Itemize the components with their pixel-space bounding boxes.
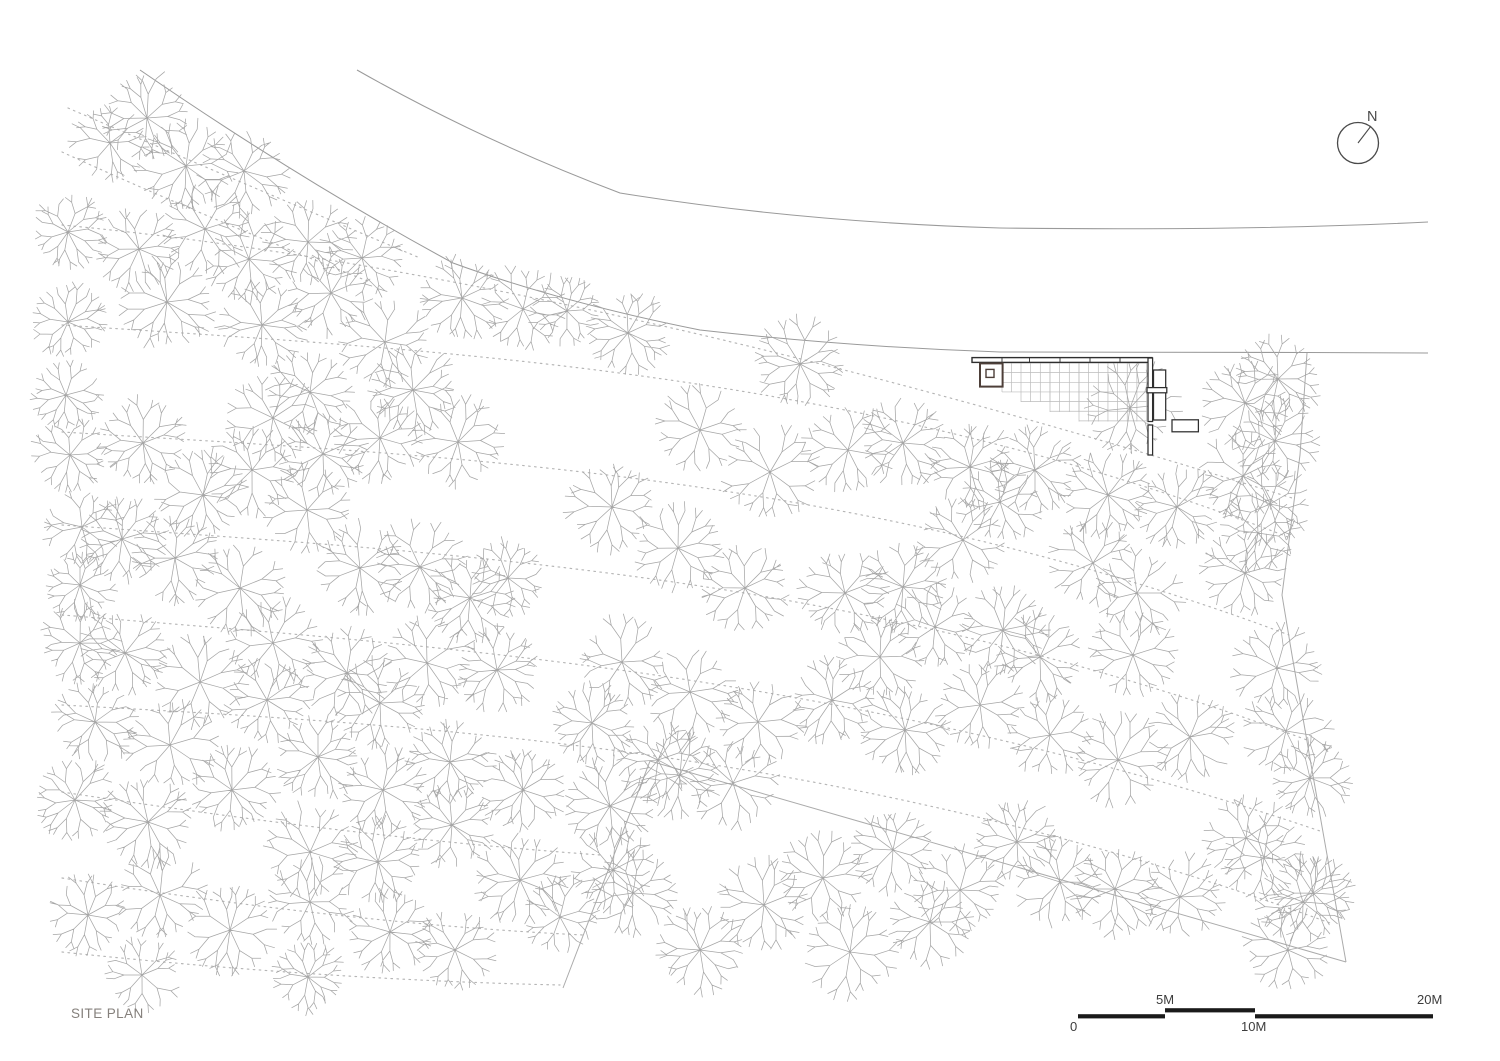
tree-symbol <box>553 681 634 765</box>
road-lines <box>140 70 1428 353</box>
tree-symbol <box>68 106 149 182</box>
tree-symbol <box>337 656 425 750</box>
tree-symbol <box>1232 396 1320 481</box>
tree-symbol <box>1077 711 1168 808</box>
tree-symbol <box>1202 795 1289 879</box>
tree-symbol <box>656 907 743 998</box>
tree-symbol <box>30 360 104 428</box>
tree-symbol <box>960 586 1051 674</box>
tree-symbol <box>411 395 504 490</box>
tree-symbol <box>1225 813 1305 901</box>
tree-symbol <box>368 345 455 439</box>
tree-symbol <box>914 844 1004 934</box>
tree-symbol <box>1048 521 1133 607</box>
site-plan-page: SITE PLAN 0 5M 10M 20M N <box>0 0 1500 1061</box>
scale-label-0: 0 <box>1070 1019 1077 1034</box>
tree-symbol <box>317 518 402 615</box>
tree-symbol <box>861 687 951 775</box>
tree-symbol <box>50 874 125 956</box>
tree-symbol <box>428 557 515 643</box>
north-needle <box>1358 126 1371 143</box>
tree-symbol <box>116 846 207 937</box>
scale-label-20m: 20M <box>1417 992 1442 1007</box>
tree-symbol <box>851 812 931 896</box>
tree-symbol <box>617 717 700 806</box>
tree-symbol <box>261 200 357 284</box>
tree-symbol <box>31 419 104 492</box>
tree-symbol <box>891 583 974 666</box>
tree-symbol <box>472 537 542 617</box>
tree-symbol <box>1084 359 1182 454</box>
tree-symbol <box>1088 612 1178 697</box>
tree-symbol <box>215 280 308 367</box>
tree-symbol <box>779 831 872 921</box>
tree-symbol <box>563 464 652 555</box>
tree-symbol <box>37 761 113 841</box>
tree-symbol <box>592 849 677 938</box>
tree-symbol <box>101 72 187 160</box>
tree-symbol <box>43 491 124 564</box>
tree-symbol <box>51 683 138 761</box>
tree-symbol <box>482 750 564 833</box>
tree-symbol <box>793 656 874 745</box>
tree-symbol <box>272 943 343 1016</box>
building-terrace-grid <box>1002 363 1147 422</box>
tree-symbol <box>889 881 974 969</box>
tree-symbol <box>209 426 295 518</box>
tree-symbol <box>350 888 432 973</box>
tree-symbol <box>1199 532 1286 615</box>
tree-symbol <box>97 395 186 484</box>
tree-symbol <box>339 301 429 388</box>
tree-symbol <box>163 185 249 276</box>
tree-symbol <box>481 266 565 351</box>
parcel-boundary <box>563 353 1346 988</box>
tree-symbol <box>105 937 179 1013</box>
tree-symbol <box>1066 453 1152 538</box>
tree-symbol <box>995 610 1080 702</box>
tree-symbol <box>334 815 419 902</box>
tree-symbol <box>755 314 843 406</box>
tree-symbol <box>134 118 238 209</box>
tree-symbol <box>132 516 218 606</box>
tree-symbol <box>35 195 106 269</box>
tree-symbol <box>1135 465 1218 548</box>
tree-symbol <box>801 408 894 492</box>
tree-symbol <box>1230 622 1321 710</box>
tree-symbol <box>863 398 945 484</box>
north-arrow <box>1338 123 1379 164</box>
tree-symbol <box>339 745 428 833</box>
roof-bar <box>972 358 1152 363</box>
tree-symbol <box>580 614 665 706</box>
tree-symbol <box>651 650 738 735</box>
scale-bar <box>1078 1008 1433 1018</box>
tree-symbol <box>100 780 191 870</box>
tree-symbols <box>30 72 1355 1016</box>
tree-symbol <box>334 399 423 484</box>
contour-lines <box>62 108 1330 985</box>
tree-symbol <box>529 276 599 346</box>
tree-symbol <box>188 886 277 976</box>
tree-symbol <box>1016 837 1102 929</box>
tree-symbol <box>192 745 280 831</box>
room-square <box>980 363 1003 386</box>
tree-symbol <box>571 827 653 915</box>
page-title: SITE PLAN <box>71 1006 144 1021</box>
north-label: N <box>1367 109 1377 125</box>
tree-symbol <box>280 412 369 497</box>
tree-symbol <box>196 545 285 636</box>
tree-symbol <box>836 616 924 696</box>
tree-symbol <box>916 499 1005 583</box>
tree-symbol <box>797 554 890 634</box>
scale-label-10m: 10M <box>1241 1019 1266 1034</box>
tree-symbol <box>315 217 402 301</box>
tree-symbol <box>702 545 789 630</box>
tree-symbol <box>97 209 179 292</box>
tree-symbol <box>263 801 357 897</box>
tree-symbol <box>475 833 571 924</box>
tree-symbol <box>586 294 670 375</box>
scale-label-5m: 5M <box>1156 992 1174 1007</box>
tree-symbol <box>721 425 819 517</box>
tree-symbol <box>1149 695 1234 783</box>
tree-symbol <box>197 132 290 219</box>
tree-symbol <box>1008 694 1093 774</box>
tree-symbol <box>716 682 807 767</box>
tree-symbol <box>79 614 170 695</box>
building-footprint <box>972 358 1198 455</box>
tree-symbol <box>640 731 719 820</box>
site-plan-drawing <box>0 0 1500 1061</box>
tree-symbol <box>635 502 724 593</box>
tree-symbol <box>974 801 1058 880</box>
tree-symbol <box>266 352 355 434</box>
tree-symbol <box>458 624 537 712</box>
tree-symbol <box>33 282 107 357</box>
tree-symbol <box>805 905 898 1002</box>
